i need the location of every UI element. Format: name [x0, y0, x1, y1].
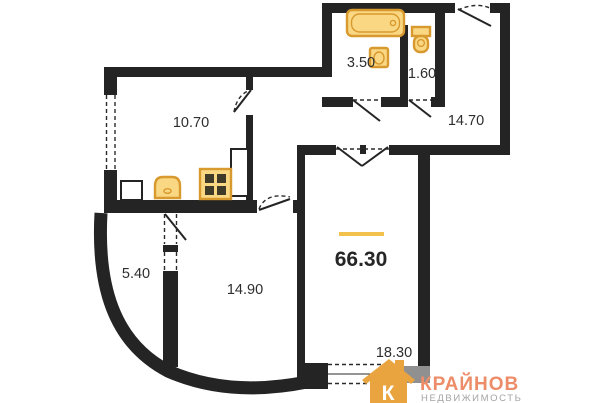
room-area-label-balcony: 5.40 — [122, 266, 150, 282]
wall-segment — [322, 97, 353, 107]
room-area-label-kitchen: 10.70 — [173, 115, 209, 131]
wall-segment — [104, 67, 117, 95]
wall-segment — [431, 97, 445, 107]
logo-monogram: К — [382, 382, 395, 403]
kitchen-sink-icon — [155, 177, 180, 198]
wall-segment — [389, 145, 510, 155]
total-area-label: 66.30 — [335, 248, 388, 271]
door-leaf — [353, 100, 380, 121]
wall-segment — [500, 3, 510, 155]
room-area-label-bedroom: 14.90 — [227, 282, 263, 298]
door-leaf — [337, 147, 362, 166]
room-area-label-wc: 1.60 — [408, 66, 436, 82]
total-area-underline — [339, 232, 384, 236]
door-leaf — [165, 214, 186, 240]
total-area: 66.30 — [335, 232, 388, 271]
door-swing-arc — [259, 196, 290, 209]
room-area-label-hallway: 14.70 — [448, 113, 484, 129]
wall-niche — [121, 181, 142, 200]
windows — [107, 95, 403, 384]
wall-segment — [418, 148, 430, 366]
wall-segment — [435, 3, 445, 107]
duct-shaft — [231, 149, 248, 196]
wall-segment — [163, 245, 178, 252]
agency-logo: К КРАЙНОВ НЕДВИЖИМОСТЬ — [362, 359, 522, 403]
wall-segment — [104, 200, 257, 213]
wall-segment — [163, 271, 178, 367]
curved-exterior-wall — [100, 213, 307, 388]
logo-brand-text: КРАЙНОВ — [420, 373, 519, 395]
wall-segment — [322, 3, 332, 77]
room-area-label-living-room: 18.30 — [376, 345, 412, 361]
room-area-label-bathroom: 3.50 — [347, 55, 375, 71]
wall-segment — [297, 145, 305, 367]
floorplan-svg: 10.70 3.50 1.60 14.70 5.40 14.90 18.30 6… — [0, 0, 605, 403]
stove-icon — [200, 169, 231, 199]
door-leaf — [458, 9, 491, 26]
logo-subtitle-text: НЕДВИЖИМОСТЬ — [421, 393, 522, 403]
door-leaf — [234, 90, 251, 112]
floorplan-page: 10.70 3.50 1.60 14.70 5.40 14.90 18.30 6… — [0, 0, 605, 403]
wall-segment — [381, 97, 408, 107]
door-leaf — [259, 199, 290, 210]
wall-segment — [246, 75, 253, 90]
wall-segment — [104, 67, 332, 77]
bathtub-icon — [347, 10, 404, 36]
toilet-icon — [412, 27, 430, 52]
door-leaf — [409, 100, 431, 117]
